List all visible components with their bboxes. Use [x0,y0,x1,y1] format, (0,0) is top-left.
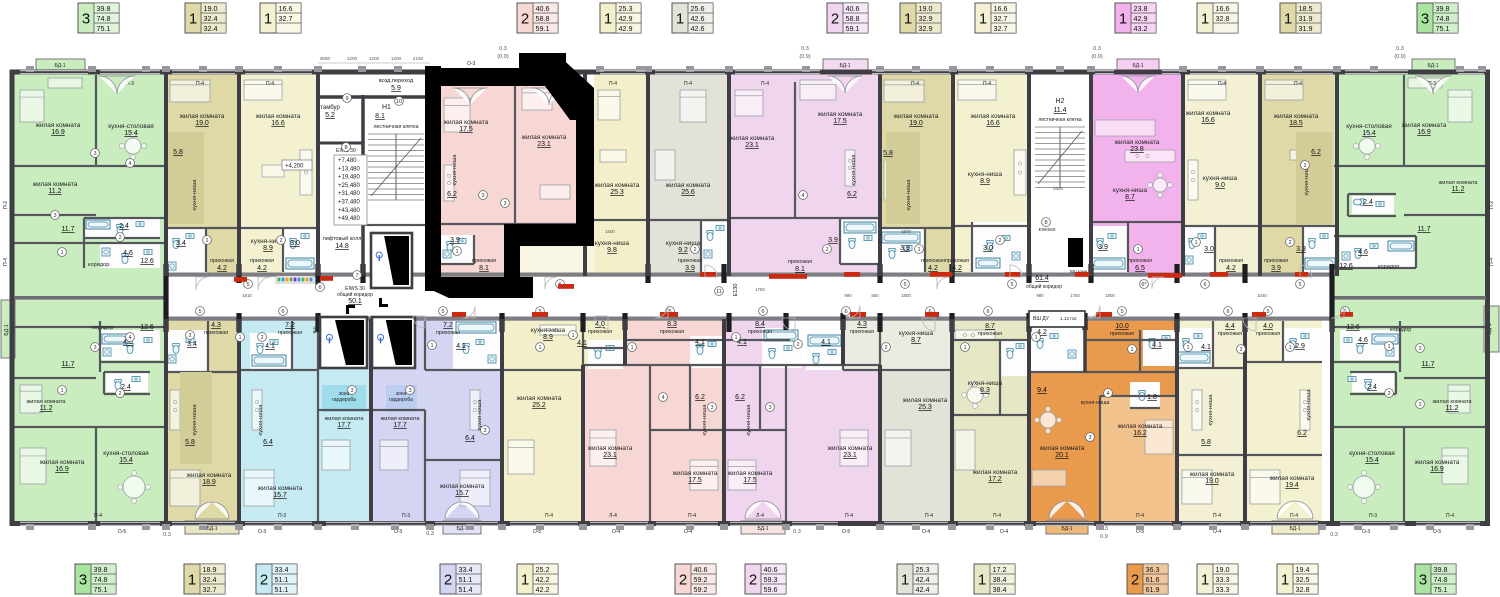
svg-text:П-4: П-4 [1489,258,1495,266]
svg-text:61.6: 61.6 [1146,575,1160,584]
svg-text:жилая комната: жилая комната [36,122,81,129]
svg-text:П-4: П-4 [684,81,692,87]
svg-text:6: 6 [761,309,764,315]
svg-text:32.4: 32.4 [204,24,218,33]
svg-text:5: 5 [1298,282,1301,288]
svg-text:кухня-ниша: кухня-ниша [1113,187,1148,194]
svg-text:23.8: 23.8 [1134,4,1148,13]
svg-text:15.7: 15.7 [455,490,469,497]
svg-text:П-3: П-3 [402,513,410,519]
svg-text:П-4: П-4 [911,81,919,87]
svg-text:4.3: 4.3 [211,322,221,329]
svg-text:2: 2 [693,247,696,253]
svg-text:П-3: П-3 [278,513,286,519]
svg-text:жилая комната: жилая комната [517,395,562,402]
svg-text:32.9: 32.9 [919,24,933,33]
svg-text:4.2: 4.2 [952,265,962,272]
svg-text:4.2: 4.2 [217,265,227,272]
svg-text:2: 2 [118,391,121,397]
svg-text:16.6: 16.6 [1201,117,1215,124]
svg-text:гардероба: гардероба [332,397,356,403]
svg-text:11: 11 [716,289,722,295]
svg-text:12.6: 12.6 [140,258,154,265]
svg-text:16.9: 16.9 [1417,129,1431,136]
svg-text:1: 1 [238,335,241,341]
svg-text:25.3: 25.3 [610,189,624,196]
svg-text:4.0: 4.0 [1263,323,1273,330]
svg-text:0.9: 0.9 [1100,534,1108,540]
svg-text:жилая комната: жилая комната [187,472,232,479]
svg-text:8.9: 8.9 [263,245,273,252]
svg-text:3: 3 [710,405,713,411]
svg-text:40.6: 40.6 [846,4,860,13]
svg-text:1: 1 [676,11,684,28]
svg-text:1: 1 [1034,335,1037,341]
svg-text:кухня-ниша: кухня-ниша [702,404,708,436]
svg-text:9: 9 [345,96,348,102]
svg-text:17.7: 17.7 [337,422,351,429]
svg-text:19.0: 19.0 [195,120,209,127]
svg-text:5.8: 5.8 [173,149,183,156]
svg-text:жилая комната: жилая комната [728,470,773,477]
svg-text:3.9: 3.9 [450,237,460,244]
svg-text:16.6: 16.6 [994,4,1008,13]
svg-text:3.3: 3.3 [1296,246,1306,253]
svg-text:П-4: П-4 [196,81,204,87]
svg-text:3.0: 3.0 [983,245,993,252]
svg-text:6: 6 [318,285,321,291]
svg-text:П-4: П-4 [609,81,617,87]
svg-text:3.4: 3.4 [176,240,186,247]
svg-text:3: 3 [82,11,90,28]
svg-text:EIWS60: EIWS60 [1039,227,1056,232]
svg-text:25.3: 25.3 [916,565,930,574]
svg-text:2.9: 2.9 [1295,343,1305,350]
svg-text:3: 3 [1418,346,1421,352]
svg-text:6: 6 [844,309,847,315]
svg-text:кухня-столовая: кухня-столовая [1349,450,1395,457]
svg-text:42.4: 42.4 [916,575,930,584]
svg-text:1: 1 [1201,572,1209,589]
svg-text:14.8: 14.8 [335,243,349,250]
svg-text:0.3: 0.3 [1330,532,1338,538]
svg-text:8.7: 8.7 [911,337,921,344]
svg-text:2: 2 [749,572,757,589]
svg-text:59.6: 59.6 [764,585,778,594]
svg-text:прихожая: прихожая [1256,331,1280,337]
svg-text:1: 1 [188,572,196,589]
svg-text:+31,480: +31,480 [338,191,361,197]
svg-text:1750: 1750 [755,287,765,292]
svg-text:23.1: 23.1 [603,452,617,459]
svg-text:жилая комната: жилая комната [973,469,1018,476]
svg-text:лестничная клетка: лестничная клетка [373,124,418,130]
svg-text:кухня-ниша: кухня-ниша [968,380,1003,387]
svg-text:Н2: Н2 [1056,98,1065,105]
svg-text:1810: 1810 [242,293,252,298]
svg-text:О-4: О-4 [922,529,931,535]
svg-text:51.1: 51.1 [459,575,473,584]
svg-text:П-4: П-4 [1136,513,1144,519]
svg-text:6: 6 [281,309,284,315]
svg-text:БД-1: БД-1 [757,526,768,532]
svg-text:прихожая: прихожая [788,259,812,265]
svg-text:БД-1: БД-1 [1061,526,1072,532]
svg-text:0.3: 0.3 [163,532,171,538]
svg-text:кухня-ниша: кухня-ниша [1203,175,1238,182]
svg-text:11.2: 11.2 [1445,405,1458,412]
svg-text:3.9: 3.9 [828,237,838,244]
svg-text:общий коридор: общий коридор [1026,283,1062,290]
svg-text:8.9: 8.9 [543,334,553,341]
svg-text:42.9: 42.9 [1134,14,1148,23]
svg-text:11.7: 11.7 [1421,361,1434,368]
svg-text:25.3: 25.3 [918,404,932,411]
svg-text:19.0: 19.0 [909,120,923,127]
svg-text:12.6: 12.6 [140,324,154,331]
svg-text:2: 2 [521,11,529,28]
svg-text:2: 2 [1387,391,1390,397]
svg-text:3: 3 [481,193,484,199]
svg-text:жилая комната: жилая комната [440,483,485,490]
svg-text:3: 3 [408,388,411,394]
svg-text:2.4: 2.4 [1367,384,1377,391]
svg-text:1.8: 1.8 [1147,394,1157,401]
svg-text:прихожая: прихожая [210,258,234,264]
svg-text:12.6: 12.6 [1346,324,1360,331]
svg-text:П-4: П-4 [761,81,769,87]
svg-text:0.3: 0.3 [1396,46,1404,52]
svg-text:П-4: П-4 [545,513,553,519]
svg-text:15.4: 15.4 [124,130,138,137]
svg-text:8: 8 [344,145,347,151]
svg-text:1: 1 [60,388,63,394]
svg-text:БД-1: БД-1 [1289,526,1300,532]
svg-text:жилая комната: жилая комната [1415,459,1460,466]
svg-text:кухня-ниша: кухня-ниша [452,154,458,186]
svg-text:лифтовый колл: лифтовый колл [323,235,362,242]
svg-text:1: 1 [917,247,920,253]
svg-text:16.9: 16.9 [55,466,69,473]
svg-text:17.5: 17.5 [459,126,473,133]
svg-text:6.2: 6.2 [695,394,705,401]
svg-text:4: 4 [128,335,131,341]
svg-text:75.1: 75.1 [97,24,111,33]
svg-text:2: 2 [1131,572,1139,589]
svg-text:4.1: 4.1 [456,343,466,350]
svg-text:19.0: 19.0 [919,4,933,13]
svg-text:1750: 1750 [1070,293,1080,298]
svg-text:5.8: 5.8 [1201,439,1211,446]
svg-text:+49,480: +49,480 [338,216,361,222]
svg-text:2: 2 [260,572,268,589]
svg-text:9.4: 9.4 [1037,387,1047,394]
svg-text:42.2: 42.2 [536,575,550,584]
svg-text:16.9: 16.9 [1430,466,1444,473]
svg-text:16.6: 16.6 [271,120,285,127]
svg-text:жилая комната: жилая комната [595,182,640,189]
svg-text:1: 1 [264,11,272,28]
svg-text:5: 5 [1266,309,1269,315]
svg-text:2.4: 2.4 [1363,199,1373,206]
svg-text:17.5: 17.5 [743,477,757,484]
svg-text:20.1: 20.1 [1055,452,1069,459]
svg-text:П-4: П-4 [1213,513,1221,519]
svg-text:4.2: 4.2 [928,265,938,272]
svg-text:прихожая: прихожая [1219,258,1243,264]
svg-text:БД-1: БД-1 [4,324,10,335]
svg-text:П-4: П-4 [1218,81,1226,87]
svg-text:Л-4: Л-4 [609,513,617,519]
svg-text:1: 1 [978,572,986,589]
svg-text:2: 2 [1288,240,1291,246]
svg-text:О-3: О-3 [467,61,476,67]
svg-text:32.8: 32.8 [1296,585,1310,594]
svg-text:Л-4: Л-4 [756,513,764,519]
svg-text:3: 3 [53,213,56,219]
svg-text:(0.9): (0.9) [497,54,508,60]
svg-text:(0.9): (0.9) [1091,54,1102,60]
svg-text:1: 1 [1130,347,1133,353]
svg-text:6.4: 6.4 [465,435,475,442]
svg-text:16.9: 16.9 [51,129,65,136]
svg-text:прихожая: прихожая [978,331,1002,337]
svg-text:0.3: 0.3 [499,46,507,52]
svg-text:25.3: 25.3 [619,4,633,13]
svg-text:39.8: 39.8 [97,4,111,13]
svg-text:3: 3 [1419,572,1427,589]
svg-text:18.5: 18.5 [1299,4,1313,13]
svg-text:жилая комната: жилая комната [258,485,303,492]
svg-text:6.2: 6.2 [1297,430,1307,437]
svg-text:прихожая: прихожая [1218,331,1242,337]
svg-text:2: 2 [260,335,263,341]
svg-text:3: 3 [93,345,96,351]
svg-text:лестничная клетка: лестничная клетка [1038,117,1082,123]
svg-text:(0.9): (0.9) [799,54,810,60]
svg-text:42.9: 42.9 [619,24,633,33]
svg-text:1: 1 [1119,11,1127,28]
svg-text:19.0: 19.0 [204,4,218,13]
svg-text:кухня-ниша: кухня-ниша [477,399,483,431]
svg-text:40.6: 40.6 [764,565,778,574]
svg-text:П-4: П-4 [266,81,274,87]
svg-text:38.4: 38.4 [993,585,1007,594]
svg-text:кухня-столовая: кухня-столовая [108,123,154,130]
svg-text:25.6: 25.6 [691,4,705,13]
svg-text:БД-1: БД-1 [54,63,65,69]
svg-text:74.8: 74.8 [1436,14,1450,23]
svg-text:39.8: 39.8 [1436,4,1450,13]
svg-text:ВШ: ВШ [312,327,317,334]
svg-text:8.3: 8.3 [667,321,677,328]
svg-text:43.2: 43.2 [1134,24,1148,33]
svg-text:23.8: 23.8 [1130,146,1144,153]
svg-text:кухня-столовая: кухня-столовая [1346,123,1392,130]
svg-text:жилая комната: жилая комната [903,397,948,404]
svg-text:1: 1 [430,343,433,349]
svg-text:4.4: 4.4 [1225,323,1235,330]
svg-text:850: 850 [871,293,879,298]
svg-text:6.2: 6.2 [1311,149,1321,156]
svg-text:жилая комната: жилая комната [1274,113,1319,120]
svg-text:кухня-ниша: кухня-ниша [906,179,912,211]
svg-text:2: 2 [1303,163,1306,169]
svg-text:1200: 1200 [391,56,402,61]
svg-text:16.6: 16.6 [1216,4,1230,13]
svg-text:8.3: 8.3 [980,387,990,394]
svg-text:П-4: П-4 [925,513,933,519]
svg-text:61.9: 61.9 [1146,585,1160,594]
svg-text:жилая комната: жилая комната [1402,122,1447,129]
svg-text:3: 3 [768,405,771,411]
svg-text:3.4: 3.4 [187,341,197,348]
svg-text:74.8: 74.8 [94,575,108,584]
svg-text:4.6: 4.6 [1358,337,1368,344]
svg-text:2.4: 2.4 [119,223,129,230]
svg-text:коридор: коридор [88,262,109,268]
svg-text:возд.переход: возд.переход [379,78,414,84]
svg-text:прихожая: прихожая [1110,331,1134,337]
svg-text:2: 2 [188,333,191,339]
svg-text:жилая комната: жилая комната [828,445,873,452]
svg-text:1040: 1040 [1257,293,1267,298]
svg-text:3.0: 3.0 [1204,246,1214,253]
svg-text:18.5: 18.5 [1289,120,1303,127]
svg-text:жилая комната: жилая комната [1118,423,1163,430]
svg-text:Е130: Е130 [733,284,739,297]
svg-text:жилая комната: жилая комната [588,445,633,452]
svg-text:4.1: 4.1 [1201,344,1211,351]
svg-text:3: 3 [1421,11,1429,28]
svg-text:5: 5 [903,282,906,288]
svg-text:32.5: 32.5 [1296,575,1310,584]
svg-text:П-4: П-4 [688,513,696,519]
svg-text:коридор: коридор [1390,327,1411,333]
svg-text:32.7: 32.7 [994,14,1008,23]
svg-text:8.4: 8.4 [755,321,765,328]
svg-text:Н1: Н1 [382,104,391,111]
svg-text:жилая комната: жилая комната [1040,445,1085,452]
svg-text:кухня-ниша: кухня-ниша [968,171,1003,178]
svg-text:4.1: 4.1 [1152,342,1162,349]
svg-text:прихожая: прихожая [660,329,684,335]
svg-text:11.2: 11.2 [1451,186,1464,193]
svg-text:36.3: 36.3 [1146,565,1160,574]
svg-text:75.1: 75.1 [1436,24,1450,33]
svg-text:2150: 2150 [413,56,424,61]
svg-text:12.6: 12.6 [1339,263,1353,270]
svg-text:23.1: 23.1 [745,142,759,149]
svg-text:8.1: 8.1 [795,266,805,273]
svg-text:0.3: 0.3 [801,46,809,52]
svg-text:59.1: 59.1 [536,24,550,33]
svg-text:4: 4 [801,193,804,199]
svg-text:П-4: П-4 [1290,513,1298,519]
svg-text:прихожая: прихожая [850,329,874,335]
svg-text:П-4: П-4 [1446,513,1454,519]
svg-text:жилая комната: жилая комната [673,470,718,477]
svg-text:19.4: 19.4 [1285,482,1299,489]
svg-text:4.2: 4.2 [257,265,267,272]
svg-text:33.4: 33.4 [275,565,289,574]
svg-text:1500: 1500 [901,229,911,234]
svg-text:коридор: коридор [1378,264,1399,270]
svg-text:+7,480: +7,480 [338,158,357,164]
svg-text:19.0: 19.0 [1205,478,1219,485]
svg-text:10.0: 10.0 [1115,323,1129,330]
svg-text:2: 2 [444,572,452,589]
svg-text:жилая комната: жилая комната [1186,110,1231,117]
svg-text:1500: 1500 [605,229,615,234]
svg-text:1: 1 [1387,344,1390,350]
svg-text:58.8: 58.8 [846,14,860,23]
svg-text:4.2: 4.2 [1226,265,1236,272]
svg-text:жилая комната: жилая комната [180,113,225,120]
svg-text:59.2: 59.2 [694,575,708,584]
svg-text:П-2: П-2 [3,201,9,209]
svg-text:51.1: 51.1 [275,585,289,594]
svg-text:1: 1 [1281,572,1289,589]
svg-text:59.2: 59.2 [694,585,708,594]
svg-text:8.7: 8.7 [1125,194,1135,201]
svg-text:39.8: 39.8 [1434,565,1448,574]
svg-text:23.1: 23.1 [537,141,551,148]
svg-text:1: 1 [1194,240,1197,246]
svg-text:6*: 6* [1141,282,1147,288]
svg-text:3.9: 3.9 [1271,265,1281,272]
svg-text:5.9: 5.9 [391,85,401,92]
svg-text:3: 3 [1418,402,1421,408]
svg-text:42.2: 42.2 [536,585,550,594]
svg-text:жилая комната: жилая комната [256,113,301,120]
svg-text:50.1: 50.1 [348,298,362,305]
svg-text:980: 980 [1036,293,1044,298]
svg-text:3.9: 3.9 [900,245,910,252]
svg-text:7: 7 [355,273,358,279]
svg-text:кухня-ниша: кухня-ниша [531,327,566,334]
svg-text:3.0: 3.0 [290,240,300,247]
svg-text:4.6: 4.6 [123,250,133,257]
svg-text:+13,480: +13,480 [338,166,361,172]
svg-text:+43,480: +43,480 [338,208,361,214]
svg-text:О-3: О-3 [1362,529,1371,535]
svg-text:0.3: 0.3 [426,531,434,537]
svg-text:3.9: 3.9 [1098,244,1108,251]
svg-text:5: 5 [441,309,444,315]
svg-text:5: 5 [198,309,201,315]
svg-text:15.4: 15.4 [119,457,133,464]
svg-text:38.4: 38.4 [993,575,1007,584]
svg-text:4.3: 4.3 [857,321,867,328]
svg-text:+37,480: +37,480 [338,200,361,206]
svg-text:6.5: 6.5 [1135,265,1145,272]
svg-text:8.7: 8.7 [985,323,995,330]
svg-text:жилая комната: жилая комната [40,459,85,466]
svg-text:7.2: 7.2 [285,322,295,329]
svg-text:П-4: П-4 [1294,81,1302,87]
svg-text:2: 2 [279,238,282,244]
svg-text:жилая комната: жилая комната [33,181,78,188]
svg-text:25.2: 25.2 [536,565,550,574]
svg-text:П-3: П-3 [1369,513,1377,519]
svg-text:кухня-ниша: кухня-ниша [1306,389,1312,421]
svg-text:32.4: 32.4 [203,575,217,584]
svg-text:18.9: 18.9 [202,479,216,486]
svg-text:6: 6 [986,309,989,315]
svg-text:кухня-столовая: кухня-столовая [103,450,149,457]
svg-text:5.2: 5.2 [325,112,335,119]
